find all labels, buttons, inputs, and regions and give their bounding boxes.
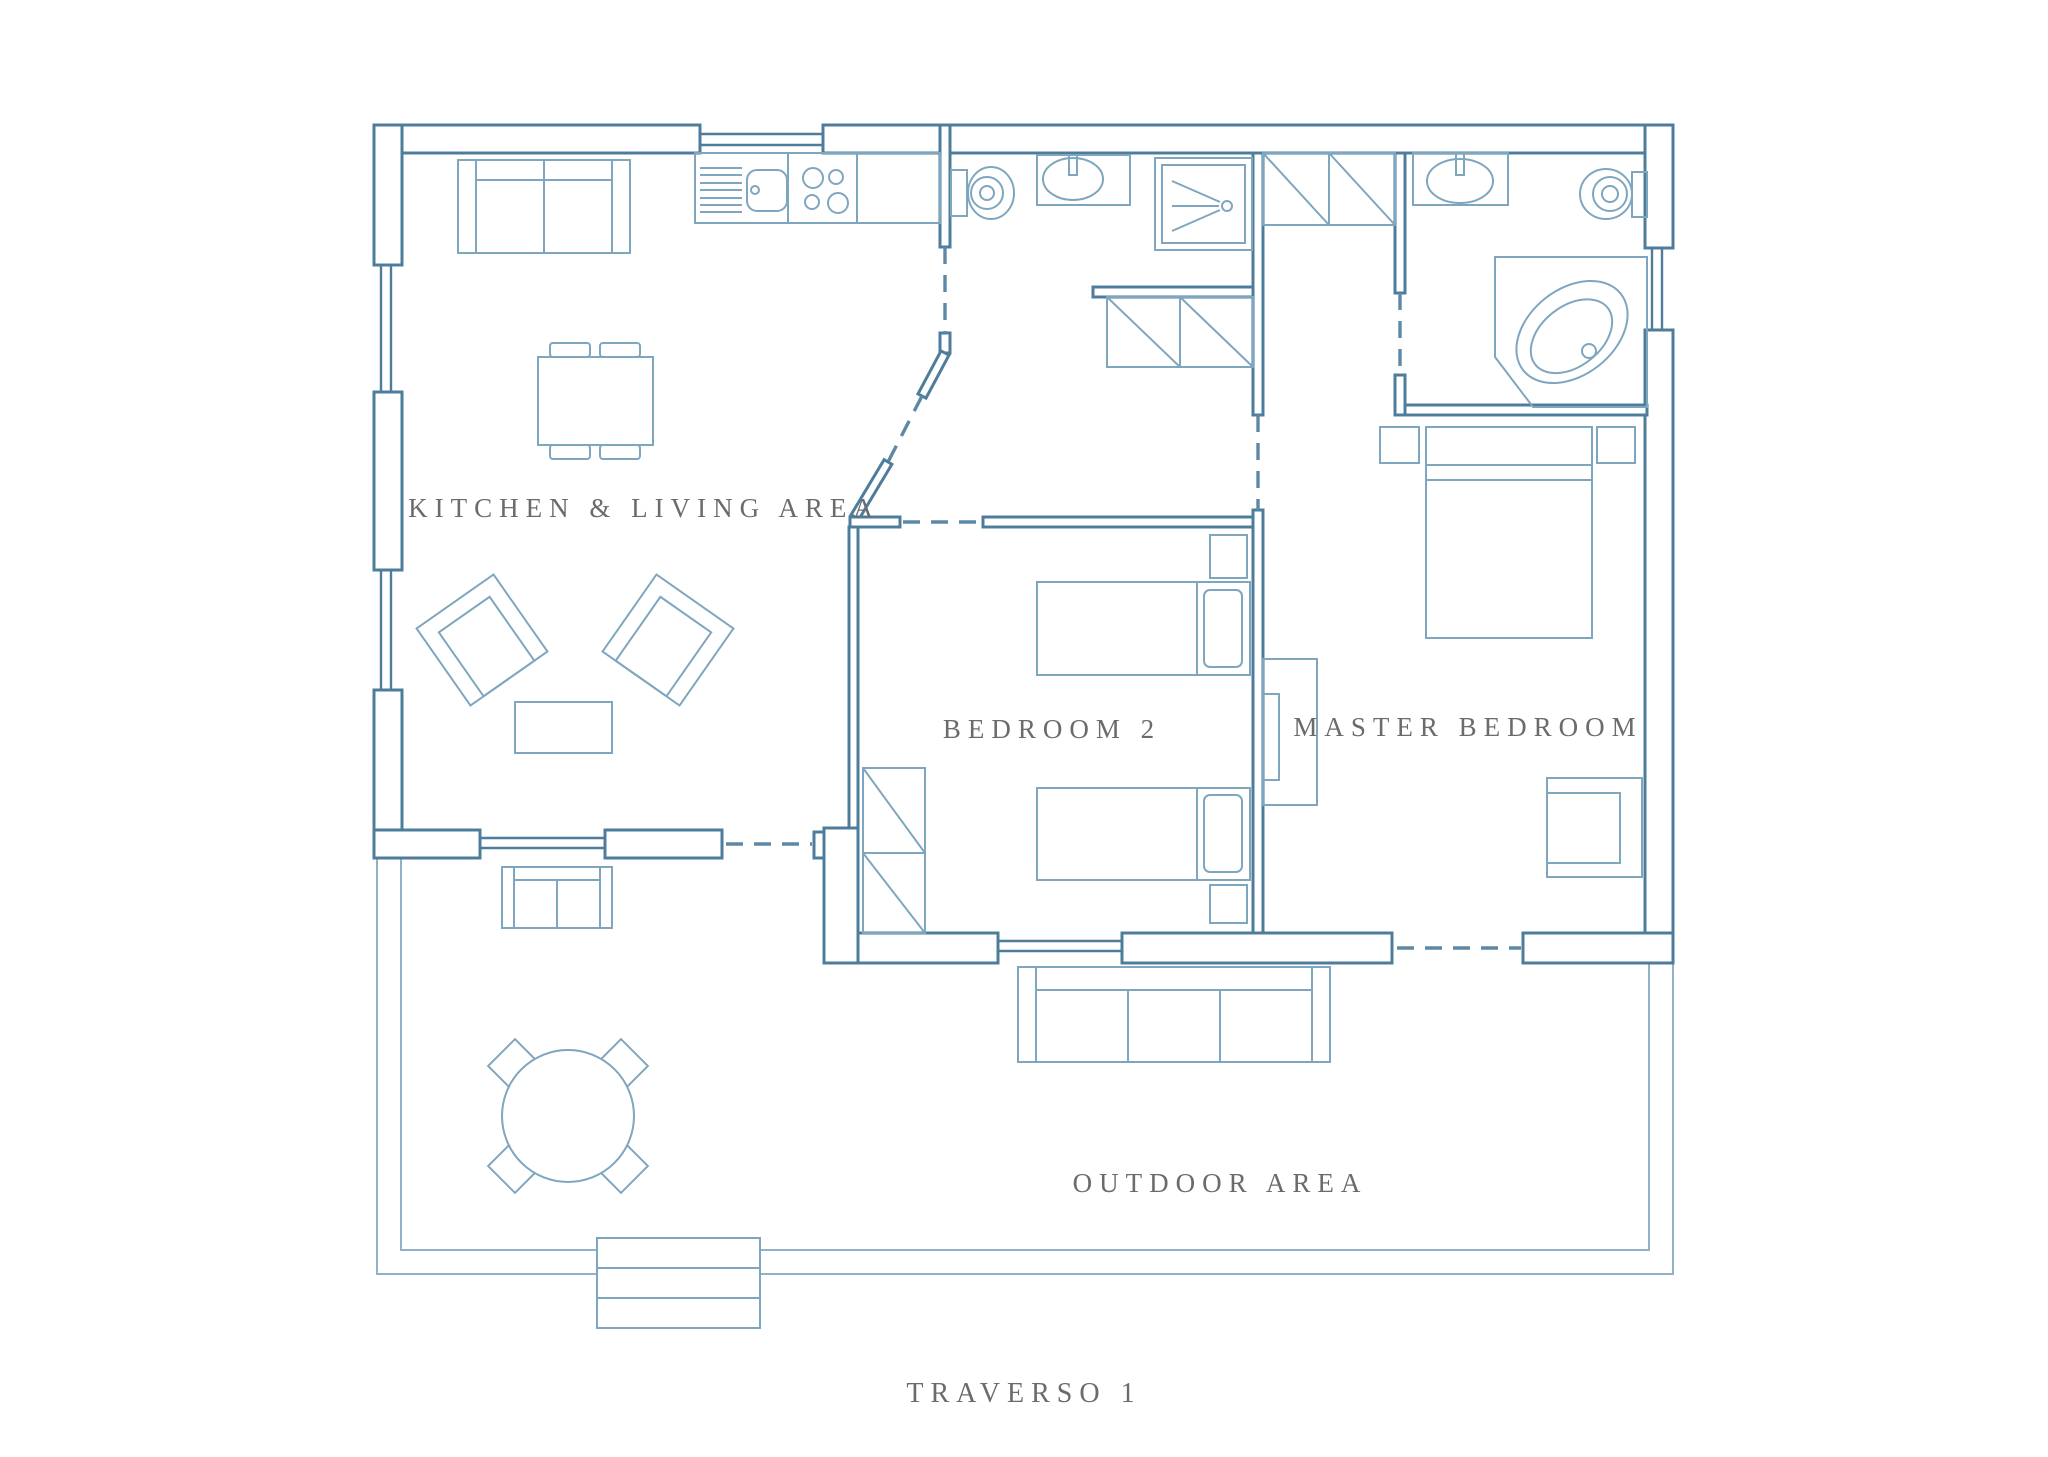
wardrobe-icon (1107, 297, 1253, 367)
room-label-kitchen-living: KITCHEN & LIVING AREA (408, 493, 880, 523)
window-master-bath-right (1652, 248, 1662, 330)
round-table-icon (488, 1039, 648, 1193)
outdoor-sofa-icon (502, 867, 612, 928)
nightstand-icon (1597, 427, 1635, 463)
toilet-icon (951, 167, 1014, 219)
desk-icon (1547, 778, 1642, 877)
window-living-bottom (480, 838, 605, 848)
windows (381, 134, 1662, 951)
wardrobe-icon (863, 768, 925, 933)
kitchen-counter-icon (695, 153, 940, 223)
door-vestibule-angled (888, 396, 922, 462)
nightstand-icon (1210, 885, 1247, 923)
room-label-master-bedroom: MASTER BEDROOM (1293, 712, 1642, 742)
single-bed-icon (1037, 788, 1250, 880)
armchair-icon (603, 575, 734, 706)
steps-icon (597, 1238, 760, 1328)
sofa-icon (458, 160, 630, 253)
floor-plan-page: KITCHEN & LIVING AREA BEDROOM 2 MASTER B… (0, 0, 2048, 1457)
main-bathroom-fixtures (951, 155, 1252, 250)
window-left-lower (381, 570, 391, 690)
window-bedroom2-bottom (998, 941, 1122, 951)
master-bathroom-fixtures (1413, 153, 1647, 407)
window-left-upper (381, 265, 391, 392)
armchair-icon (417, 575, 548, 706)
bathroom-sink-icon (1413, 153, 1508, 205)
nightstand-icon (1380, 427, 1419, 463)
dining-table-icon (538, 343, 653, 459)
master-bedroom-furniture (1263, 427, 1642, 877)
wardrobe-icon (1263, 153, 1395, 225)
toilet-icon (1580, 169, 1647, 219)
outdoor-furniture (488, 867, 1330, 1193)
shower-icon (1155, 158, 1252, 250)
kitchen-living-furniture (417, 153, 940, 753)
coffee-table-icon (515, 702, 612, 753)
single-bed-icon (1037, 582, 1250, 675)
window-kitchen-top (700, 134, 823, 145)
corner-bathtub-icon (1495, 257, 1647, 407)
nightstand-icon (1210, 535, 1247, 578)
stove-icon (803, 168, 848, 213)
room-label-outdoor: OUTDOOR AREA (1073, 1168, 1368, 1198)
outdoor-sofa-icon (1018, 967, 1330, 1062)
room-label-bedroom2: BEDROOM 2 (943, 714, 1161, 744)
bathroom-sink-icon (1037, 155, 1130, 205)
plan-title: TRAVERSO 1 (906, 1378, 1141, 1409)
double-bed-icon (1426, 427, 1592, 638)
kitchen-sink-icon (700, 168, 787, 212)
floor-plan: KITCHEN & LIVING AREA BEDROOM 2 MASTER B… (0, 0, 2048, 1457)
